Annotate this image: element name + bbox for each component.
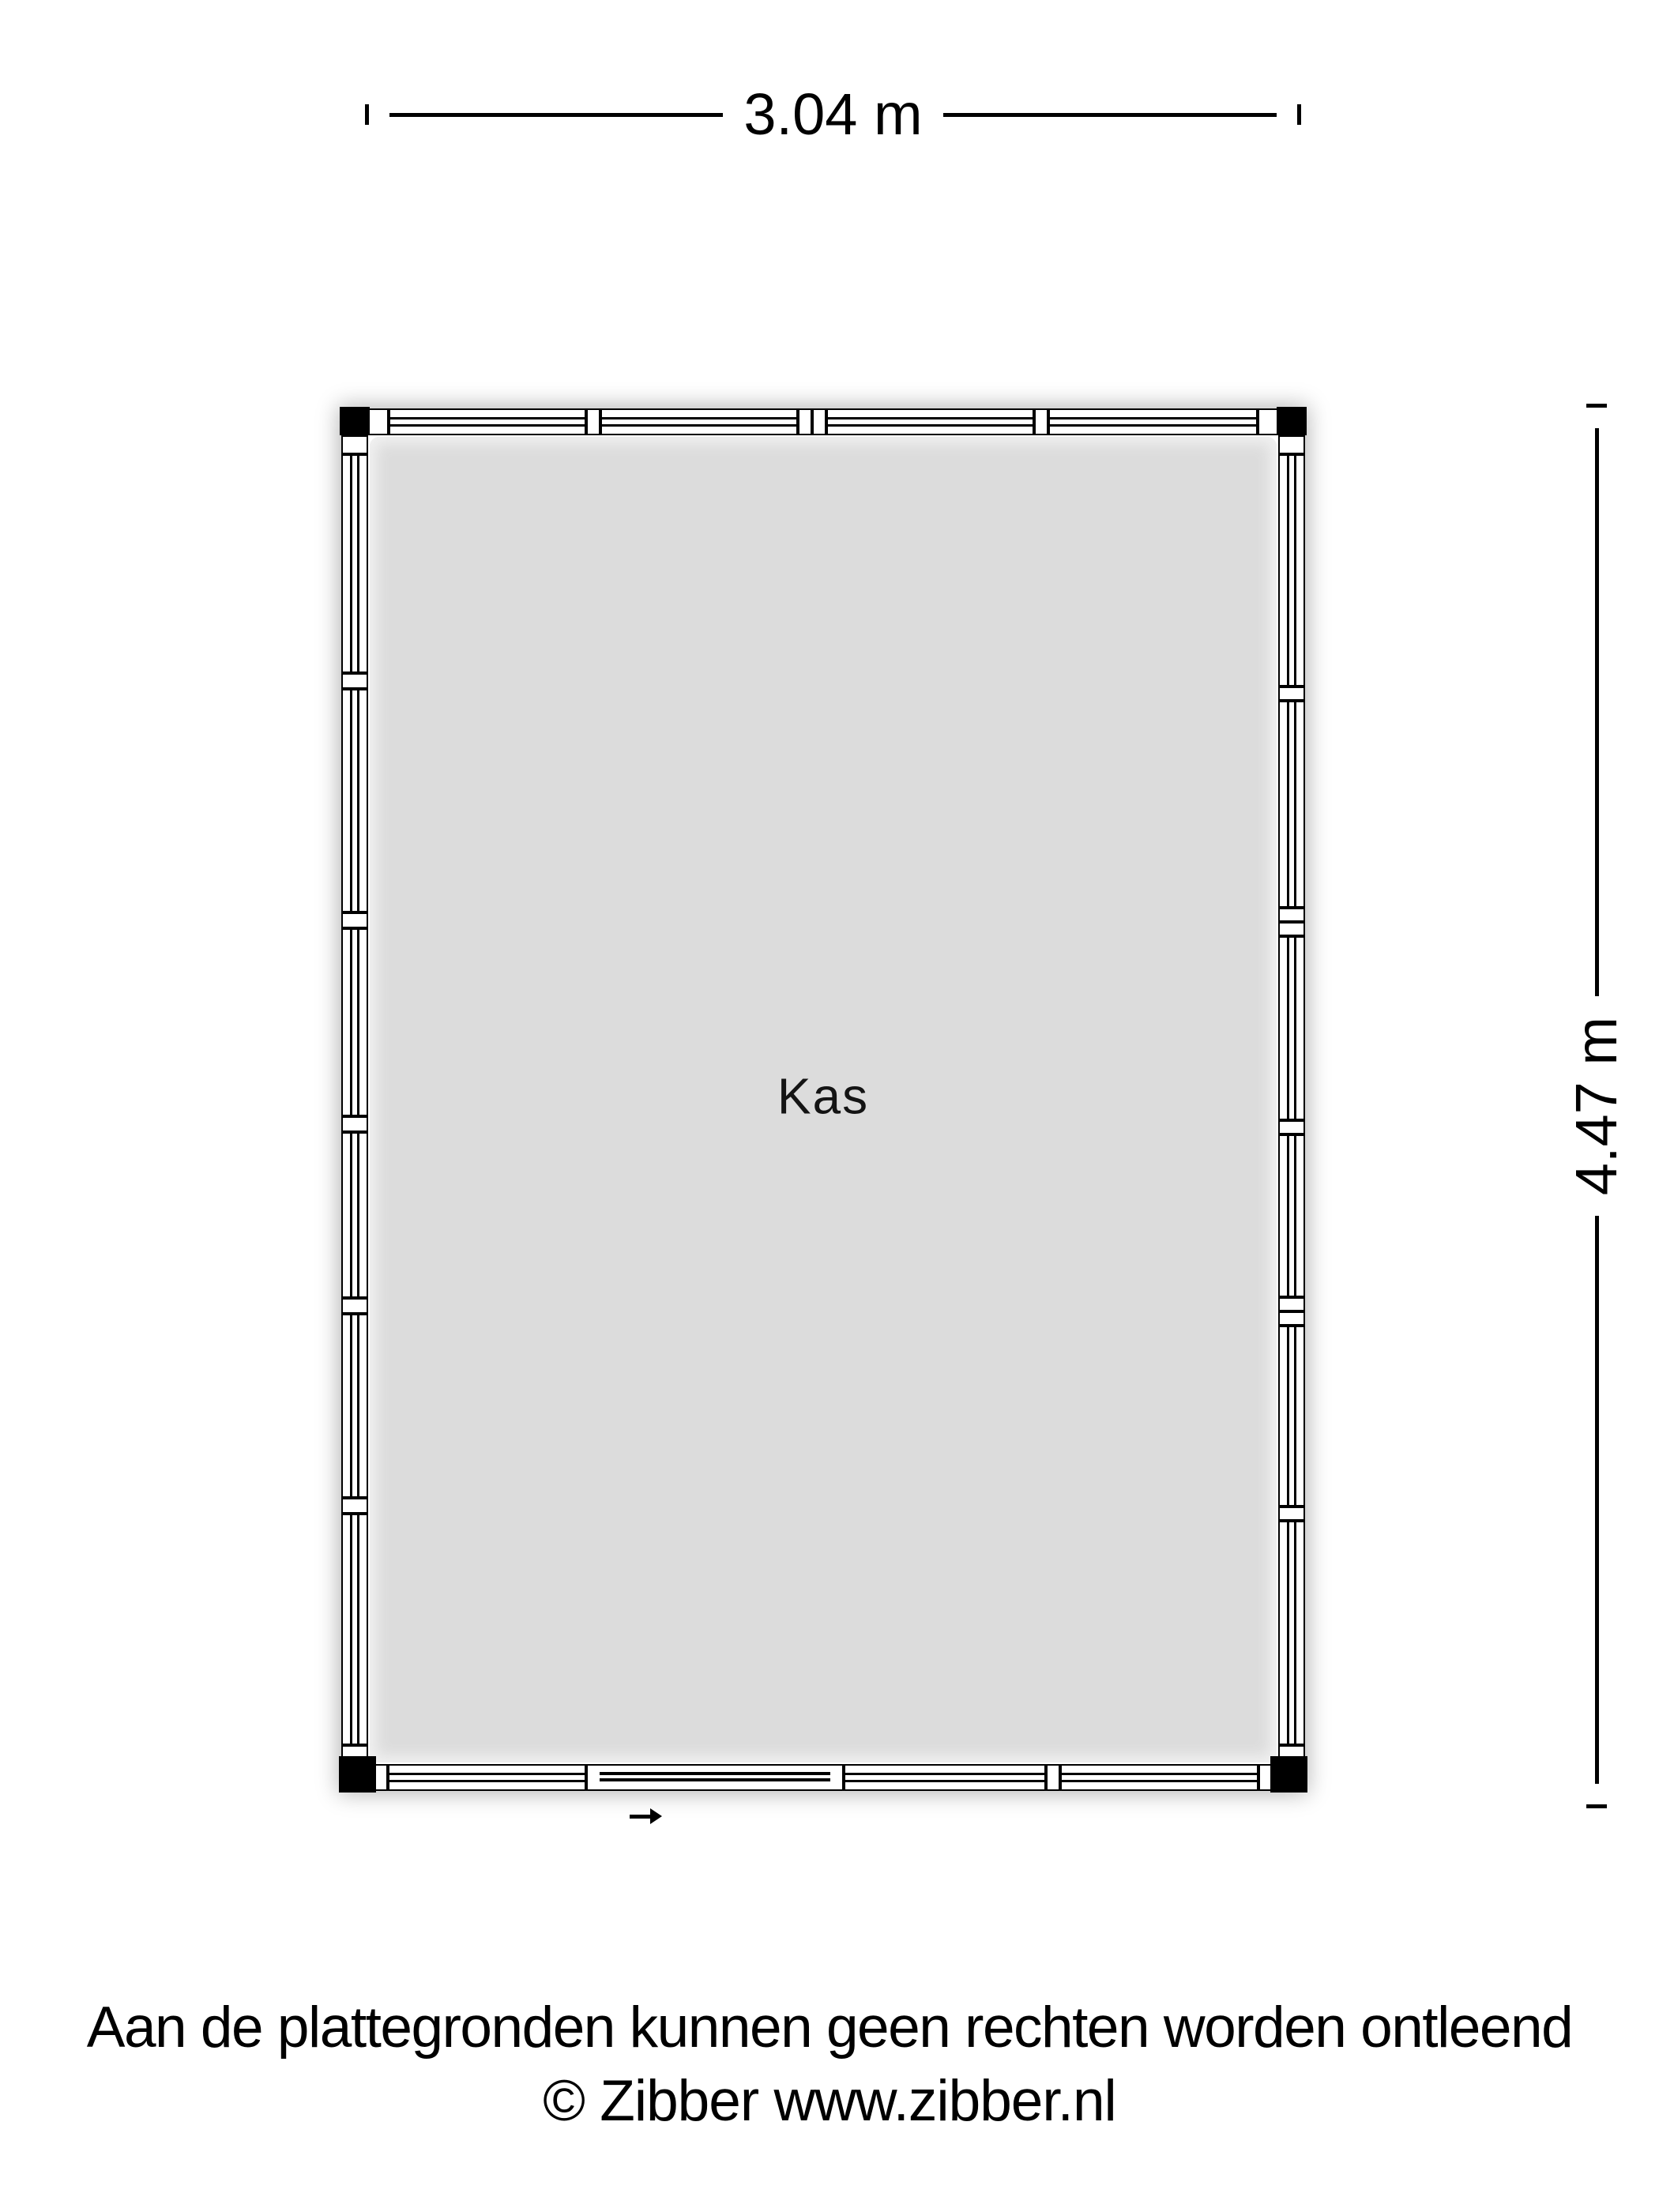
glass-panel [600, 408, 798, 435]
corner-post [339, 1756, 376, 1793]
room-label: Kas [341, 1067, 1305, 1126]
glass-panel [1048, 408, 1258, 435]
dimension-line [943, 113, 1277, 117]
floorplan-kas: Kas [341, 408, 1305, 1791]
height-dimension: 4.47 m [1565, 404, 1628, 1808]
wall-mullion [1278, 1311, 1305, 1326]
glass-panel [1278, 1134, 1305, 1297]
wall-mullion [1278, 908, 1305, 922]
wall-mullion [1278, 1507, 1305, 1521]
glass-panel [341, 689, 368, 912]
floorplan-page: 3.04 m Kas 4.47 m Aan de plattegronden k… [0, 0, 1659, 2212]
width-dimension-label: 3.04 m [743, 85, 922, 144]
wall-mullion [341, 1298, 368, 1314]
door-segment [586, 1764, 843, 1791]
wall-top [368, 408, 1278, 435]
width-dimension: 3.04 m [365, 80, 1301, 149]
glass-panel [1060, 1764, 1258, 1791]
wall-mullion [341, 673, 368, 689]
copyright-text: © Zibber www.zibber.nl [0, 2070, 1659, 2133]
wall-mullion [341, 1498, 368, 1514]
disclaimer-text: Aan de plattegronden kunnen geen rechten… [0, 1996, 1659, 2060]
dimension-tick [1586, 404, 1607, 408]
wall-mullion [1278, 687, 1305, 701]
wall-mullion [341, 435, 368, 454]
glass-panel [1278, 1326, 1305, 1507]
corner-post [1277, 407, 1307, 435]
wall-mullion [812, 408, 826, 435]
wall-mullion [1258, 408, 1278, 435]
glass-panel [826, 408, 1034, 435]
dimension-tick [1297, 104, 1301, 125]
glass-panel [844, 1764, 1046, 1791]
wall-mullion [1278, 435, 1305, 454]
glass-panel [1278, 454, 1305, 687]
dimension-line [1595, 1216, 1599, 1784]
wall-mullion [368, 408, 389, 435]
wall-mullion [1278, 1297, 1305, 1311]
wall-mullion [798, 408, 812, 435]
dimension-tick [1586, 1804, 1607, 1808]
corner-post [1270, 1756, 1307, 1793]
glass-panel [341, 1514, 368, 1745]
glass-panel [341, 1314, 368, 1498]
corner-post [340, 407, 370, 435]
dimension-line [1595, 428, 1599, 996]
glass-panel [388, 1764, 586, 1791]
glass-panel [1278, 701, 1305, 907]
wall-mullion [1278, 922, 1305, 936]
wall-mullion [341, 912, 368, 928]
dimension-line [389, 113, 723, 117]
wall-mullion [1046, 1764, 1060, 1791]
height-dimension-label: 4.47 m [1567, 1017, 1626, 1195]
wall-mullion [586, 408, 600, 435]
dimension-tick [365, 104, 369, 125]
glass-panel [1278, 1521, 1305, 1745]
glass-panel [341, 1132, 368, 1298]
wall-mullion [1034, 408, 1048, 435]
glass-panel [389, 408, 586, 435]
glass-panel [341, 454, 368, 673]
entrance-arrow-icon [630, 1808, 664, 1825]
wall-bottom [368, 1764, 1278, 1791]
